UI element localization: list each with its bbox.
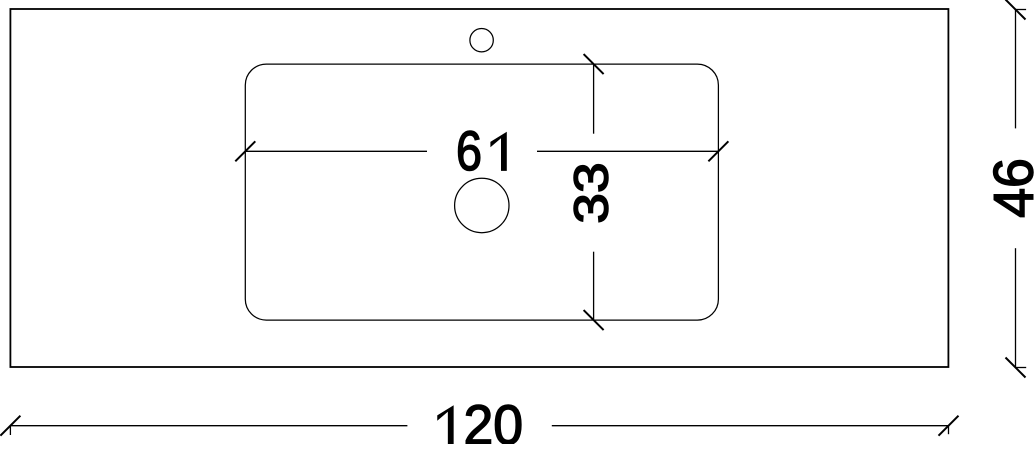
- svg-text:46: 46: [983, 158, 1035, 218]
- svg-text:20: 20: [463, 393, 523, 444]
- svg-text:33: 33: [564, 162, 618, 224]
- svg-text:6: 6: [456, 119, 482, 182]
